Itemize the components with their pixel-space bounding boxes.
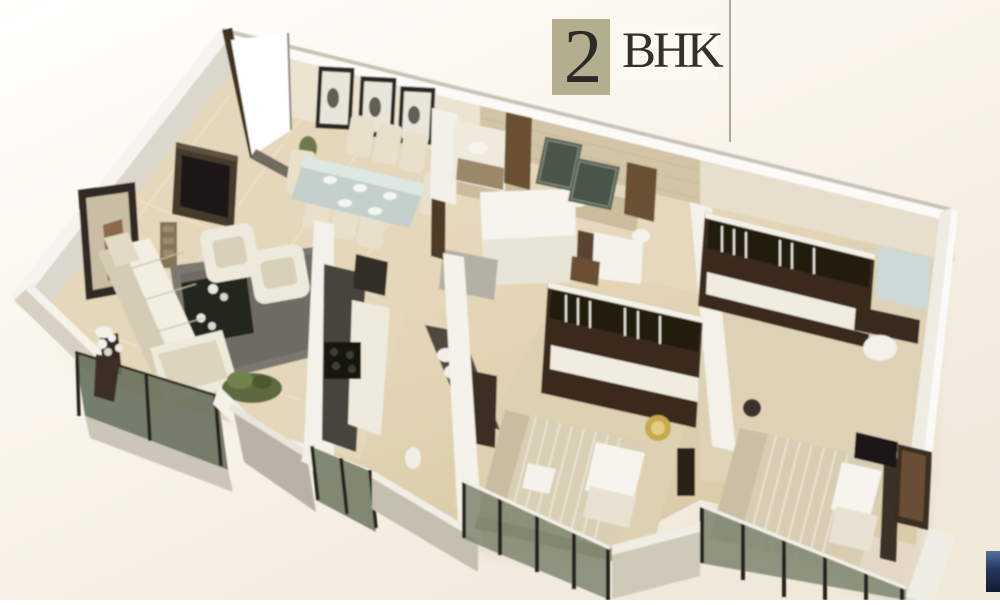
svg-text:2: 2: [564, 13, 603, 99]
svg-text:BHK: BHK: [622, 23, 724, 79]
